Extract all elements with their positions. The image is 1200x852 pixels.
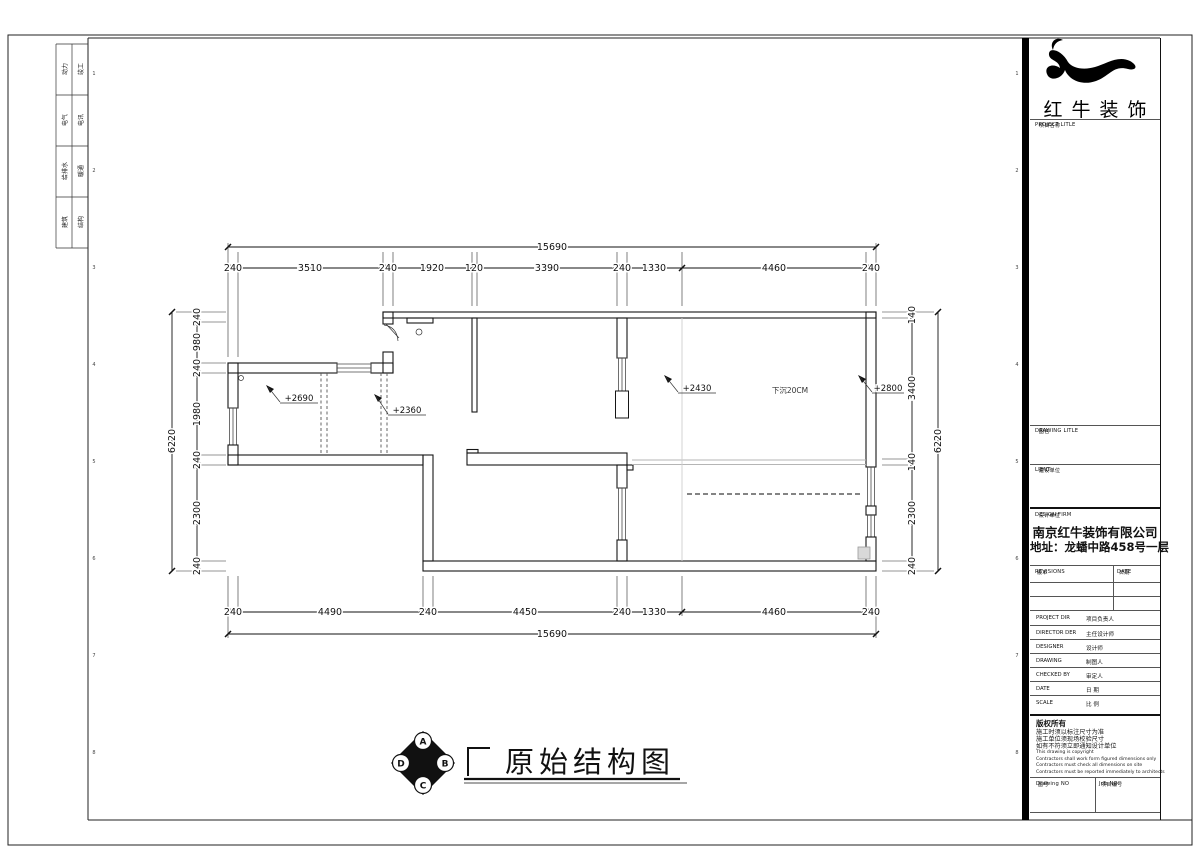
personnel-row: DRAWING制图人 xyxy=(1030,653,1160,668)
strip-label: 电讯 xyxy=(77,114,85,126)
dim-label: 240 xyxy=(862,607,880,618)
fold-mark: 3 xyxy=(1015,265,1018,271)
personnel-row: DIRECTOR DER主任设计师 xyxy=(1030,625,1160,640)
dim-label: 4460 xyxy=(762,263,786,274)
fold-mark: 1 xyxy=(92,71,95,77)
elevation-label: +2690 xyxy=(285,394,314,404)
compass-letter-s: C xyxy=(420,782,427,792)
drawing-title: 原始结构图 xyxy=(505,745,675,779)
dims-top: 15690 240 3510 240 1920 120 3390 240 133… xyxy=(224,242,880,357)
dim-label: 1330 xyxy=(642,607,666,618)
plan-annotations: +2690 +2360 +2430 +2800 下沉20CM xyxy=(266,375,904,416)
dim-label: 2300 xyxy=(192,501,203,525)
sheet-frame xyxy=(8,35,1192,845)
dim-label: 1920 xyxy=(420,263,444,274)
sheet-canvas: 动力 竣工 电气 电讯 给排水 暖通 建筑 结构 1 2 3 4 5 6 7 8… xyxy=(0,0,1200,852)
titleblock-separator-bar xyxy=(1022,38,1029,820)
binding-strip: 动力 竣工 电气 电讯 给排水 暖通 建筑 结构 xyxy=(56,44,88,248)
dim-label: 140 xyxy=(907,453,918,471)
dim-label: 120 xyxy=(465,263,483,274)
dim-label: 240 xyxy=(192,557,203,575)
strip-label: 结构 xyxy=(77,216,85,228)
copyright-line: Contractors shall work form figured dime… xyxy=(1036,757,1156,762)
strip-label: 电气 xyxy=(61,114,69,126)
strip-label: 暖通 xyxy=(77,165,85,177)
strip-label: 给排水 xyxy=(61,162,69,180)
title-bracket xyxy=(468,748,490,776)
door-swing-arc xyxy=(384,325,398,341)
copyright-line: This drawing is copyright xyxy=(1036,750,1094,755)
dim-label: 240 xyxy=(379,263,397,274)
window xyxy=(617,488,627,540)
project-title-label: PROJECT LITLE 项目名称 xyxy=(1035,122,1039,128)
fold-mark: 8 xyxy=(1015,750,1018,756)
copyright-line: Contractors must check all dimensions on… xyxy=(1036,763,1142,768)
window xyxy=(617,358,627,391)
design-firm-label: DESIGN FIRM 设计单位 xyxy=(1035,512,1039,518)
floor-plan-walls xyxy=(228,312,876,571)
fold-mark: 1 xyxy=(1015,71,1018,77)
fold-mark: 2 xyxy=(92,168,95,174)
dim-label: 4490 xyxy=(318,607,342,618)
dim-label: 240 xyxy=(907,557,918,575)
fold-mark: 6 xyxy=(92,556,95,562)
window xyxy=(868,515,875,537)
dims-bottom: 240 4490 240 4450 240 1330 4460 240 1569… xyxy=(224,576,880,640)
fold-mark: 2 xyxy=(1015,168,1018,174)
drawing-sheet: { "sheet": { "binding_strip": { "rows": … xyxy=(0,0,1200,852)
dim-total: 15690 xyxy=(537,629,567,640)
sunken-note: 下沉20CM xyxy=(772,386,808,395)
dim-label: 240 xyxy=(419,607,437,618)
title-block: 红牛装饰 PROJECT LITLE 项目名称 DRAWING LITLE 图名… xyxy=(1030,38,1161,820)
fold-mark: 7 xyxy=(1015,653,1018,659)
dim-label: 4450 xyxy=(513,607,537,618)
drawing-title-label: DRAWING LITLE 图名 xyxy=(1035,428,1039,434)
fold-mark: 4 xyxy=(92,362,95,368)
fold-mark: 6 xyxy=(1015,556,1018,562)
fold-mark: 4 xyxy=(1015,362,1018,368)
elevation-label: +2430 xyxy=(683,384,712,394)
copyright-line: Contractors must be reported immediately… xyxy=(1036,770,1165,775)
dim-label: 240 xyxy=(862,263,880,274)
copyright-line: 如有不符须立即通知设计单位 xyxy=(1036,741,1116,750)
dim-label: 2300 xyxy=(907,501,918,525)
dim-label: 1330 xyxy=(642,263,666,274)
elevation-label: +2800 xyxy=(874,384,903,394)
revisions-date-label: DATE 日期 xyxy=(1117,569,1119,575)
drawing-no-label: Drawing NO 图号 xyxy=(1036,781,1038,787)
dim-total: 6220 xyxy=(933,429,944,453)
dim-label: 240 xyxy=(192,308,203,326)
dim-label: 240 xyxy=(224,607,242,618)
dim-label: 140 xyxy=(907,306,918,324)
dim-label: 3390 xyxy=(535,263,559,274)
fold-mark: 3 xyxy=(92,265,95,271)
window xyxy=(337,363,371,373)
fold-marks: 1 2 3 4 5 6 7 8 1 2 3 4 5 6 7 8 xyxy=(92,71,1018,756)
dim-label: 240 xyxy=(613,263,631,274)
dim-label: 240 xyxy=(192,451,203,469)
fold-mark: 5 xyxy=(92,459,95,465)
fold-mark: 8 xyxy=(92,750,95,756)
beam-dashed-lines xyxy=(321,373,387,455)
company-address: 地址：龙蟠中路458号一层 xyxy=(1030,539,1160,555)
duct-block xyxy=(858,547,870,559)
drawing-title-area: A B C D 原始结构图 xyxy=(391,731,687,795)
revisions-label: REVISIONS 版本 xyxy=(1035,569,1037,575)
fold-mark: 5 xyxy=(1015,459,1018,465)
personnel-row: PROJECT DIR项目负责人 xyxy=(1030,610,1160,625)
dim-label: 1980 xyxy=(192,402,203,426)
dim-total: 15690 xyxy=(537,242,567,253)
dims-right: 140 3400 140 2300 240 6220 xyxy=(882,306,944,575)
dims-left: 240 980 240 1980 240 2300 240 6220 xyxy=(167,308,226,575)
dim-label: 240 xyxy=(192,359,203,377)
dim-label: 240 xyxy=(224,263,242,274)
compass-letter-w: D xyxy=(397,760,404,770)
personnel-row: CHECKED BY审定人 xyxy=(1030,667,1160,682)
strip-label: 动力 xyxy=(61,63,69,75)
window xyxy=(228,408,238,445)
brand-name: 红牛装饰 xyxy=(1030,95,1160,122)
fold-mark: 7 xyxy=(92,653,95,659)
personnel-row: DESIGNER设计师 xyxy=(1030,639,1160,654)
client-label: LIENT 建设单位 xyxy=(1035,467,1039,473)
dim-label: 3510 xyxy=(298,263,322,274)
personnel-row: SCALE比 例 xyxy=(1030,695,1160,710)
compass-letter-n: A xyxy=(420,738,427,748)
door-pivot xyxy=(239,376,244,381)
dim-label: 240 xyxy=(613,607,631,618)
dim-label: 980 xyxy=(192,333,203,351)
strip-label: 竣工 xyxy=(77,63,85,75)
strip-label: 建筑 xyxy=(61,216,69,228)
dim-label: 3400 xyxy=(907,376,918,400)
pipe-symbol xyxy=(416,329,422,335)
dim-label: 4460 xyxy=(762,607,786,618)
elevation-label: +2360 xyxy=(393,406,422,416)
job-no-label: Job NO 项目编号 xyxy=(1099,781,1101,787)
window xyxy=(868,467,875,506)
compass-letter-e: B xyxy=(442,760,449,770)
personnel-row: DATE日 期 xyxy=(1030,681,1160,696)
dim-total: 6220 xyxy=(167,429,178,453)
